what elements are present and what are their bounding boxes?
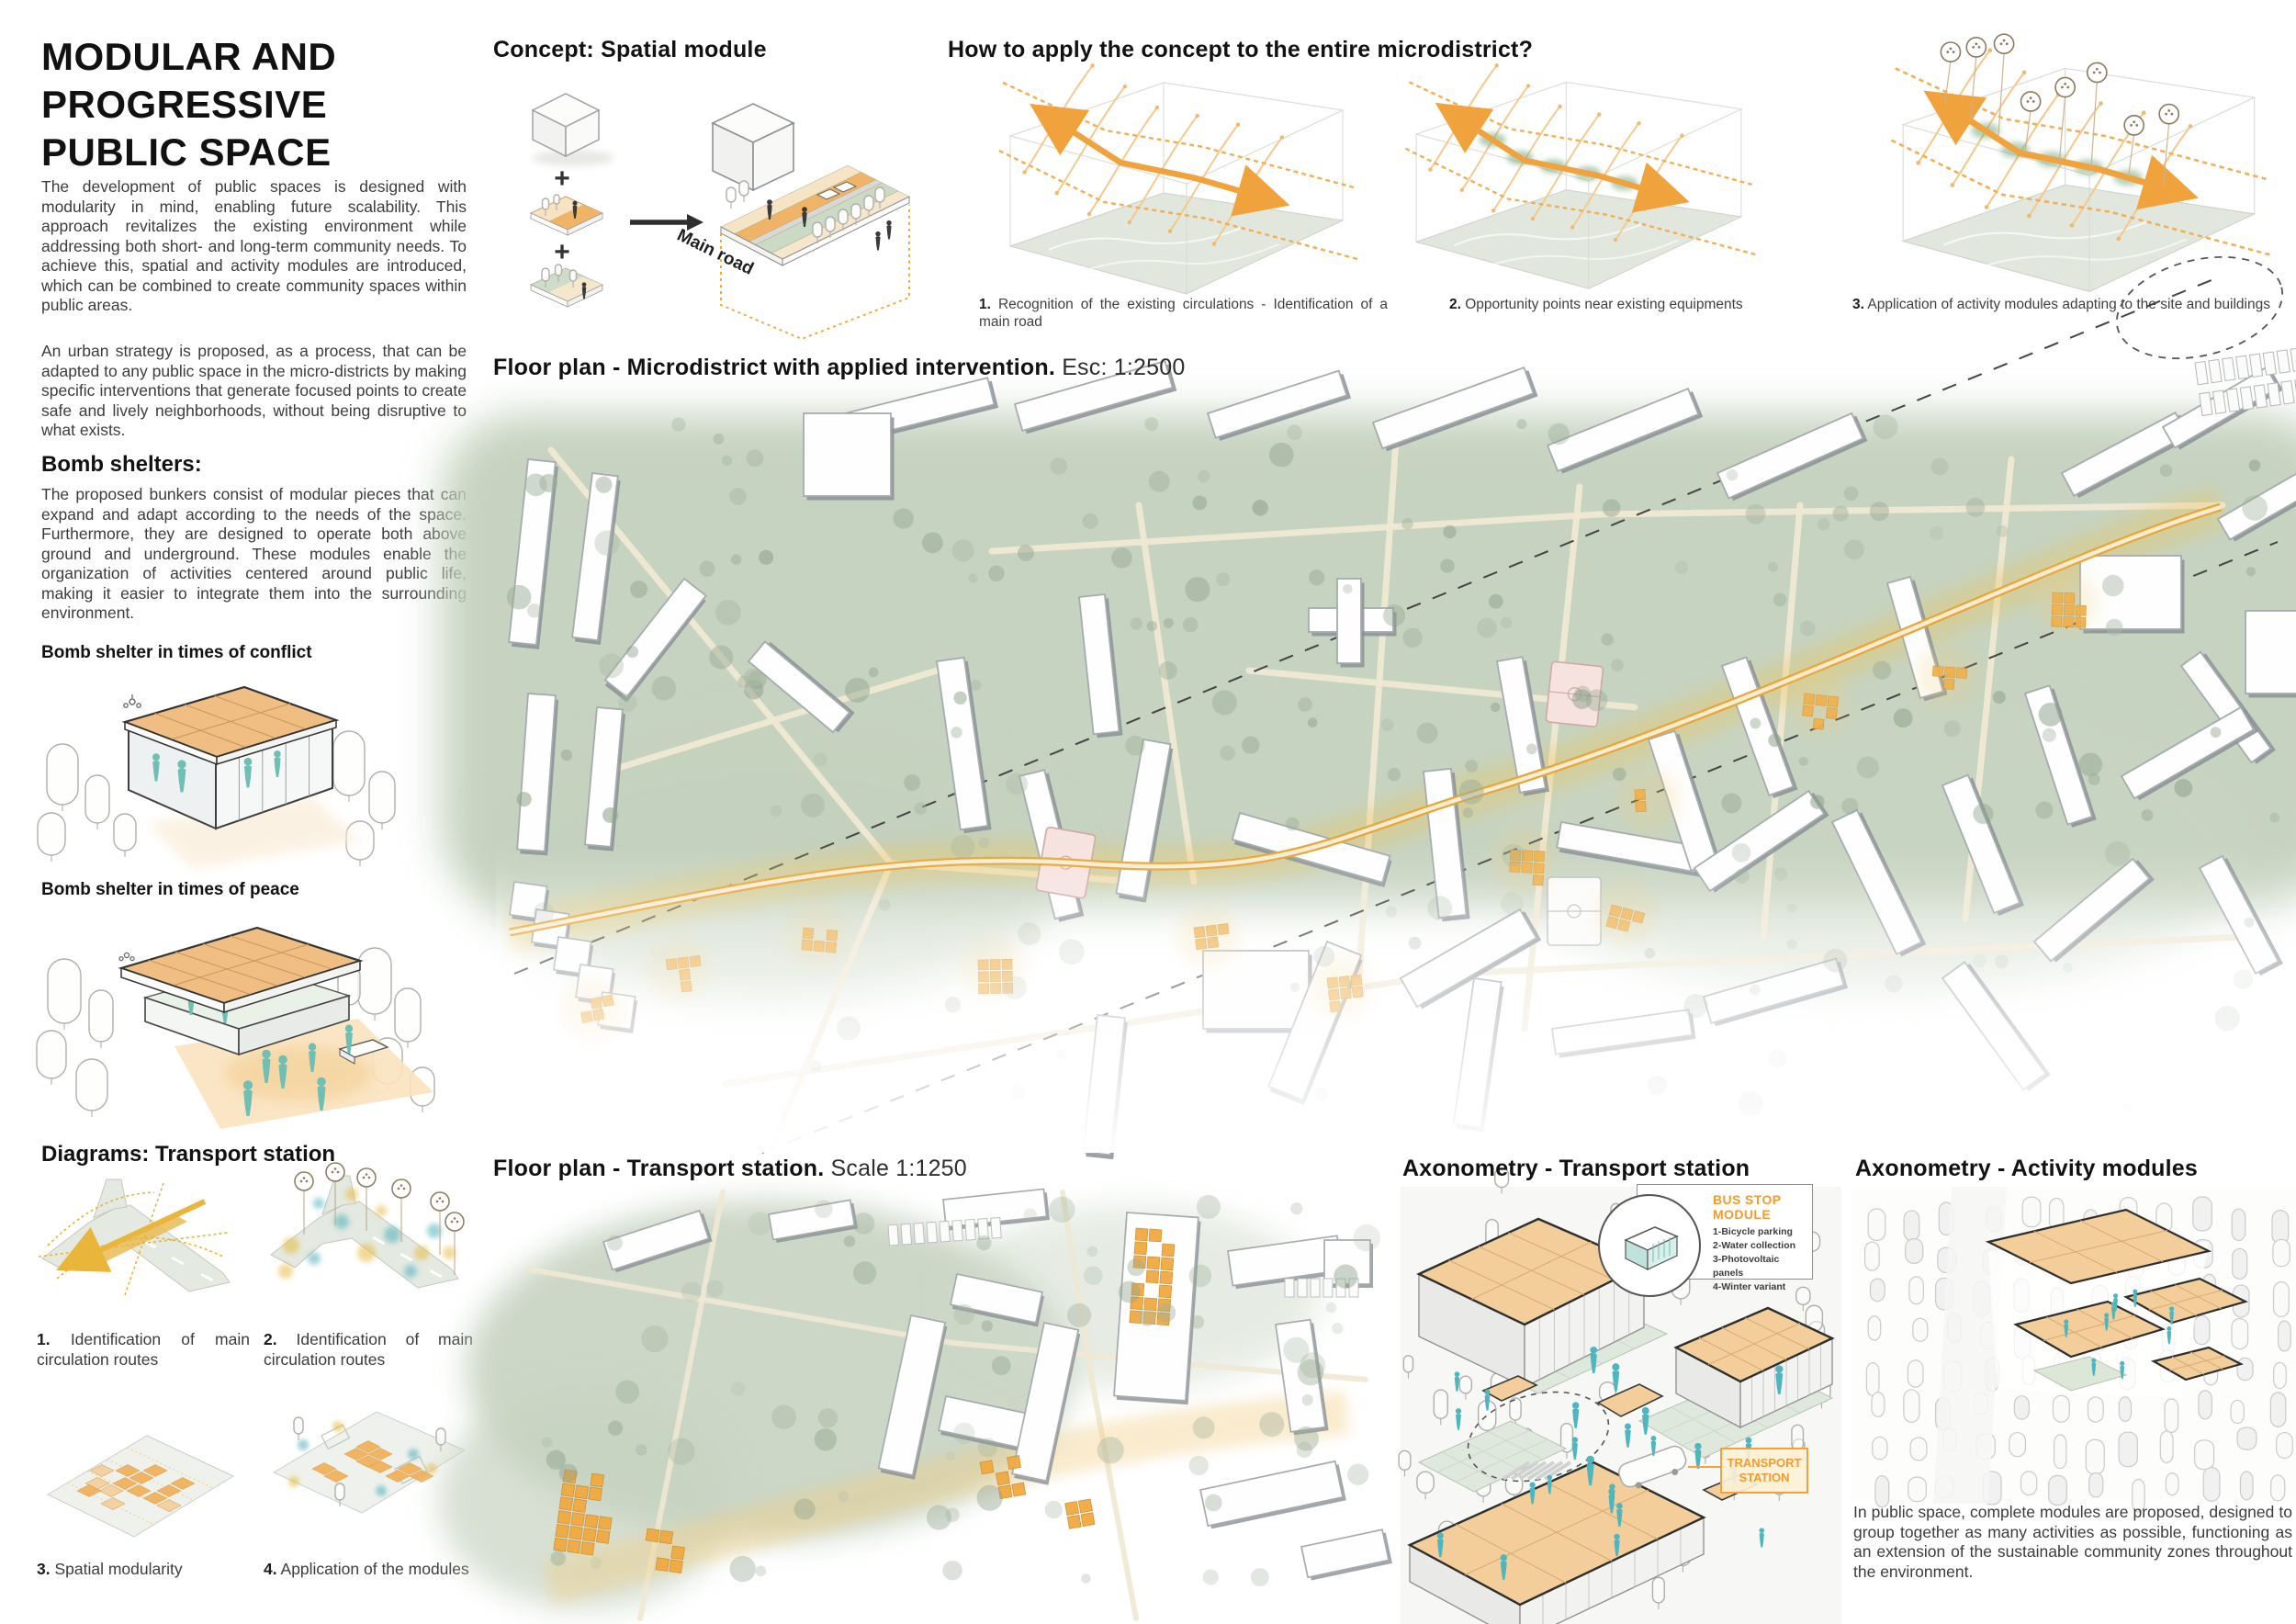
bus-stop-item: 4-Winter variant xyxy=(1713,1280,1812,1294)
micro-plan-heading: Floor plan - Microdistrict with applied … xyxy=(493,355,1185,381)
station-plan-scale: Scale 1:1250 xyxy=(831,1156,967,1181)
micro-plan-scale: Esc: 1:2500 xyxy=(1062,355,1185,380)
apply-diagram-1 xyxy=(966,66,1389,296)
diagram-circulation-routes-2 xyxy=(264,1165,470,1309)
axon-modules-paragraph: In public space, complete modules are pr… xyxy=(1853,1503,2292,1582)
svg-text:+: + xyxy=(554,164,570,194)
page-title-line-3: PUBLIC SPACE xyxy=(41,129,436,176)
axon-station-heading: Axonometry - Transport station xyxy=(1402,1156,1750,1182)
station-plan-title: Floor plan - Transport station. xyxy=(493,1156,824,1181)
caption-text: Identification of main circulation route… xyxy=(37,1330,250,1369)
bus-stop-item: 2-Water collection xyxy=(1713,1239,1812,1253)
svg-text:+: + xyxy=(554,237,570,267)
caption-text: Spatial modularity xyxy=(54,1560,182,1578)
microdistrict-floor-plan xyxy=(496,276,2296,1153)
transport-diagrams-heading: Diagrams: Transport station xyxy=(41,1142,335,1167)
bomb-shelter-conflict-illustration xyxy=(37,667,404,874)
caption-number: 2. xyxy=(264,1330,277,1348)
diagram-caption-1: 1. Identification of main circulation ro… xyxy=(37,1330,250,1370)
transport-station-label: TRANSPORT STATION xyxy=(1720,1448,1808,1494)
apply-heading: How to apply the concept to the entire m… xyxy=(948,37,1533,63)
bomb-shelters-heading: Bomb shelters: xyxy=(41,452,202,478)
axonometry-activity-modules xyxy=(1851,1187,2296,1504)
station-plan-heading: Floor plan - Transport station. Scale 1:… xyxy=(493,1156,967,1182)
bomb-shelter-peace-illustration xyxy=(37,904,441,1132)
apply-diagram-2 xyxy=(1382,62,1777,294)
bus-stop-item: 1-Bicycle parking xyxy=(1713,1225,1812,1239)
page-title: MODULAR AND PROGRESSIVE PUBLIC SPACE xyxy=(41,33,436,176)
diagram-spatial-modularity xyxy=(35,1399,243,1548)
micro-plan-title: Floor plan - Microdistrict with applied … xyxy=(493,355,1055,380)
bus-stop-mini-module xyxy=(1613,1216,1686,1275)
caption-number: 3. xyxy=(37,1560,51,1578)
bus-stop-module-inset-circle xyxy=(1598,1194,1701,1297)
diagram-caption-2: 2. Identification of main circulation ro… xyxy=(264,1330,473,1370)
conflict-shelter-label: Bomb shelter in times of conflict xyxy=(41,643,312,663)
diagram-caption-3: 3. Spatial modularity xyxy=(37,1560,253,1580)
diagram-caption-4: 4. Application of the modules xyxy=(264,1560,473,1580)
station-label-connector xyxy=(1688,1466,1721,1468)
intro-paragraph-2: An urban strategy is proposed, as a proc… xyxy=(41,342,467,441)
caption-number: 4. xyxy=(264,1560,277,1578)
peace-shelter-label: Bomb shelter in times of peace xyxy=(41,880,299,900)
bus-stop-module-items: 1-Bicycle parking 2-Water collection 3-P… xyxy=(1713,1225,1812,1294)
diagram-circulation-routes-1 xyxy=(35,1168,243,1309)
bus-stop-module-title: BUS STOP MODULE xyxy=(1713,1192,1800,1222)
transport-station-floor-plan xyxy=(493,1187,1391,1624)
intro-paragraph-1: The development of public spaces is desi… xyxy=(41,177,467,316)
axon-modules-heading: Axonometry - Activity modules xyxy=(1855,1156,2198,1182)
caption-text: Application of the modules xyxy=(281,1560,469,1578)
diagram-application-modules xyxy=(257,1381,470,1548)
page-title-line-2: PROGRESSIVE xyxy=(41,81,436,129)
caption-text: Identification of main circulation route… xyxy=(264,1330,473,1369)
page-title-line-1: MODULAR AND xyxy=(41,33,436,81)
bomb-shelters-body: The proposed bunkers consist of modular … xyxy=(41,485,467,624)
bus-stop-item: 3-Photovoltaic panels xyxy=(1713,1253,1812,1280)
caption-number: 1. xyxy=(37,1330,51,1348)
concept-heading: Concept: Spatial module xyxy=(493,37,767,63)
